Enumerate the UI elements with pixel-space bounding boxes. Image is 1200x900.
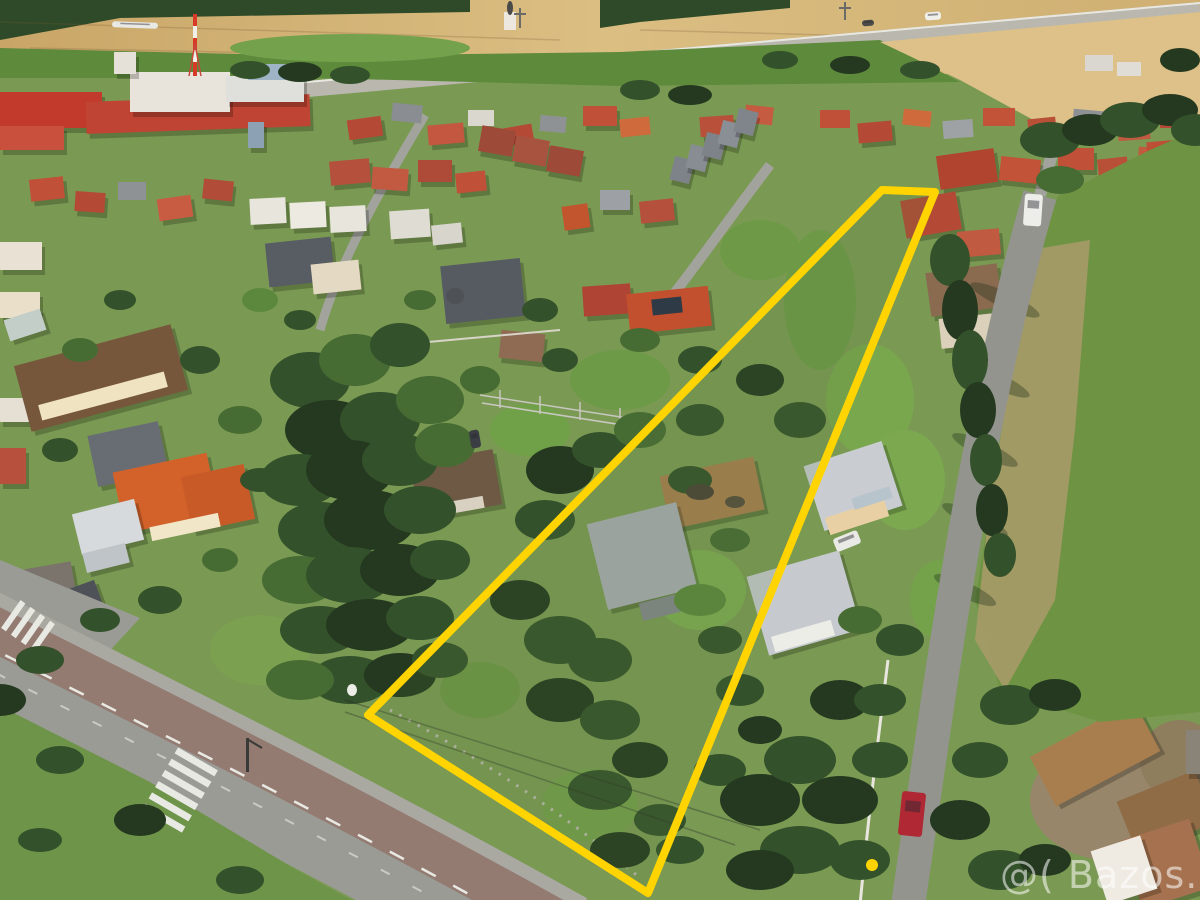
house-roof [561,203,590,230]
house-roof [329,205,366,233]
house-roof [29,176,65,201]
house-roof [582,283,632,316]
house-roof [391,102,423,123]
tree [1036,166,1084,194]
tree [410,540,470,580]
tree [930,234,970,286]
aerial-photo: @( Bazos.sk [0,0,1200,900]
tree [396,376,464,424]
tree [984,533,1016,577]
tree [952,742,1008,778]
tree [36,746,84,774]
tree [830,56,870,74]
house-roof [431,222,463,245]
plot-marker-dot [866,859,878,871]
tree [522,298,558,322]
tree [852,742,908,778]
tree [802,776,878,824]
tree [762,51,798,69]
tree [854,684,906,716]
house-roof [389,209,431,240]
tree [240,468,280,492]
house-roof [942,119,973,139]
house-roof [651,296,683,315]
vehicle [898,791,926,837]
tree [976,484,1008,536]
tree [370,323,430,367]
tree [764,736,836,784]
tree [876,624,924,656]
tree [930,800,990,840]
ground-patch [230,34,470,62]
house-roof [74,191,105,213]
tree [180,346,220,374]
tree [620,80,660,100]
house-roof [418,160,452,182]
house-roof [0,126,64,150]
tree [62,338,98,362]
house-roof [455,170,487,193]
house-roof [902,109,932,128]
tree [16,646,64,674]
tree [668,85,712,105]
tree [80,608,120,632]
tree [446,288,464,304]
tree [278,62,322,82]
vehicle [862,20,874,27]
house-roof [999,156,1041,184]
tree [42,438,78,462]
tree [404,290,436,310]
house-roof [1117,62,1141,76]
tree [216,866,264,894]
vehicle [925,11,942,20]
house-roof [539,115,566,133]
tree [384,486,456,534]
house-roof [371,167,408,191]
house-roof [118,182,146,200]
tree [266,660,334,700]
house-roof [157,195,194,222]
tree [960,382,996,438]
tree [242,288,278,312]
tree [284,310,316,330]
tree [507,1,513,15]
house-roof [0,448,26,484]
house-roof [289,201,326,229]
watermark-text: @( Bazos.sk [1000,853,1200,897]
tree [1160,48,1200,72]
tree [970,434,1002,486]
vehicle [1023,193,1043,226]
tree [830,840,890,880]
tree [415,423,475,467]
house-roof [983,108,1015,126]
tree [738,716,782,744]
tree [104,290,136,310]
tree [460,366,500,394]
house-roof [311,260,362,295]
house-roof [0,242,42,270]
house-roof [1085,55,1113,71]
tree [18,828,62,852]
tree [330,66,370,84]
tree [726,850,794,890]
house-roof [202,178,234,201]
tree [138,586,182,614]
house-roof [114,52,136,74]
house-roof [468,110,494,126]
tree [542,348,578,372]
tree [202,548,238,572]
house-roof [619,116,651,137]
house-roof [329,158,371,185]
vehicle-windshield [905,800,921,813]
house-roof [1186,730,1200,774]
house-roof [639,198,675,223]
house-roof [248,122,264,148]
ground-patch [570,350,670,410]
tree [114,804,166,836]
house-roof [820,110,850,128]
house-roof [857,121,893,144]
tree [952,330,988,390]
aerial-photo-canvas: @( Bazos.sk [0,0,1200,900]
tree [230,61,270,79]
tree [347,684,357,696]
house-roof [600,190,630,210]
tree [218,406,262,434]
house-roof [583,106,617,126]
house-roof [249,197,286,225]
tree [1029,679,1081,711]
tree [620,328,660,352]
tree [900,61,940,79]
vehicle-windshield [1027,200,1039,209]
house-roof [130,72,230,112]
tree [838,606,882,634]
house-roof [427,122,465,145]
ground-patch [720,220,800,280]
